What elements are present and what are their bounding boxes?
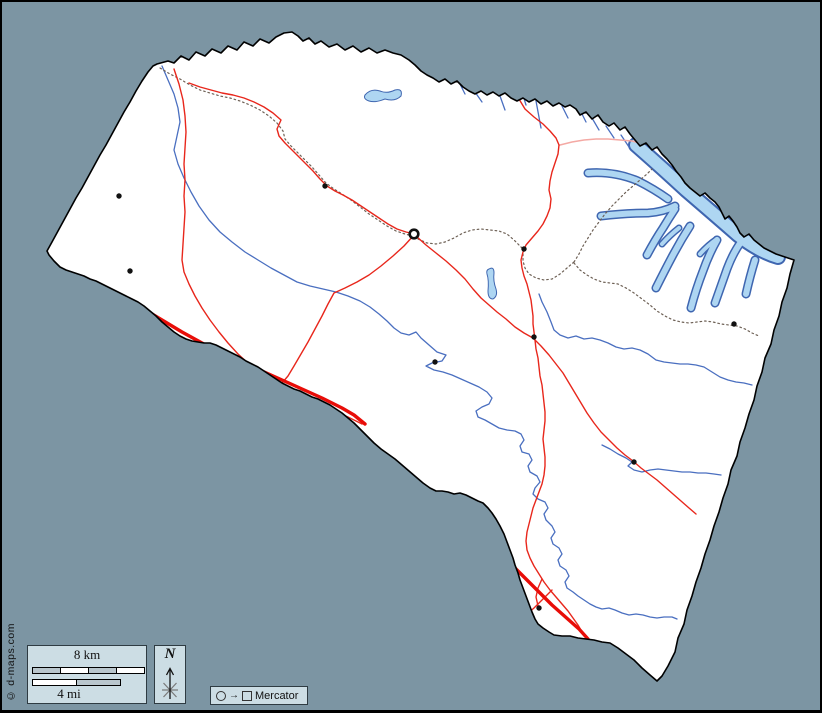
projection-square-icon — [242, 691, 252, 701]
county-land — [47, 32, 794, 681]
scale-km-label: 8 km — [28, 647, 146, 663]
north-label: N — [155, 646, 185, 663]
county-map-svg — [2, 2, 822, 713]
north-panel: N — [154, 645, 186, 704]
scale-segment — [117, 668, 144, 673]
town-dot — [116, 193, 121, 198]
scale-segment — [61, 668, 89, 673]
projection-arrow-icon: → — [229, 691, 239, 701]
town-dot — [127, 268, 132, 273]
town-dot — [731, 321, 736, 326]
scale-segment — [33, 680, 77, 685]
scale-segment — [89, 668, 117, 673]
scale-km-bar — [32, 667, 145, 674]
scale-mi-label: 4 mi — [10, 686, 128, 702]
north-arrow-icon — [159, 663, 181, 701]
scale-segment — [77, 680, 120, 685]
projection-circle-icon — [216, 691, 226, 701]
town-dot — [536, 605, 541, 610]
scale-mi-bar — [32, 679, 121, 686]
town-dot — [521, 246, 526, 251]
town-dot — [631, 459, 636, 464]
map-canvas: 8 km 4 mi N → Mercator © d-maps.com — [0, 0, 822, 713]
scale-segment — [33, 668, 61, 673]
copyright-watermark: © d-maps.com — [5, 623, 17, 702]
scale-bar-panel: 8 km 4 mi — [27, 645, 147, 704]
county-seat-marker — [410, 230, 419, 239]
town-dot — [432, 359, 437, 364]
projection-label: Mercator — [255, 690, 298, 702]
town-dot — [531, 334, 536, 339]
town-dot — [322, 183, 327, 188]
projection-legend: → Mercator — [210, 686, 308, 705]
